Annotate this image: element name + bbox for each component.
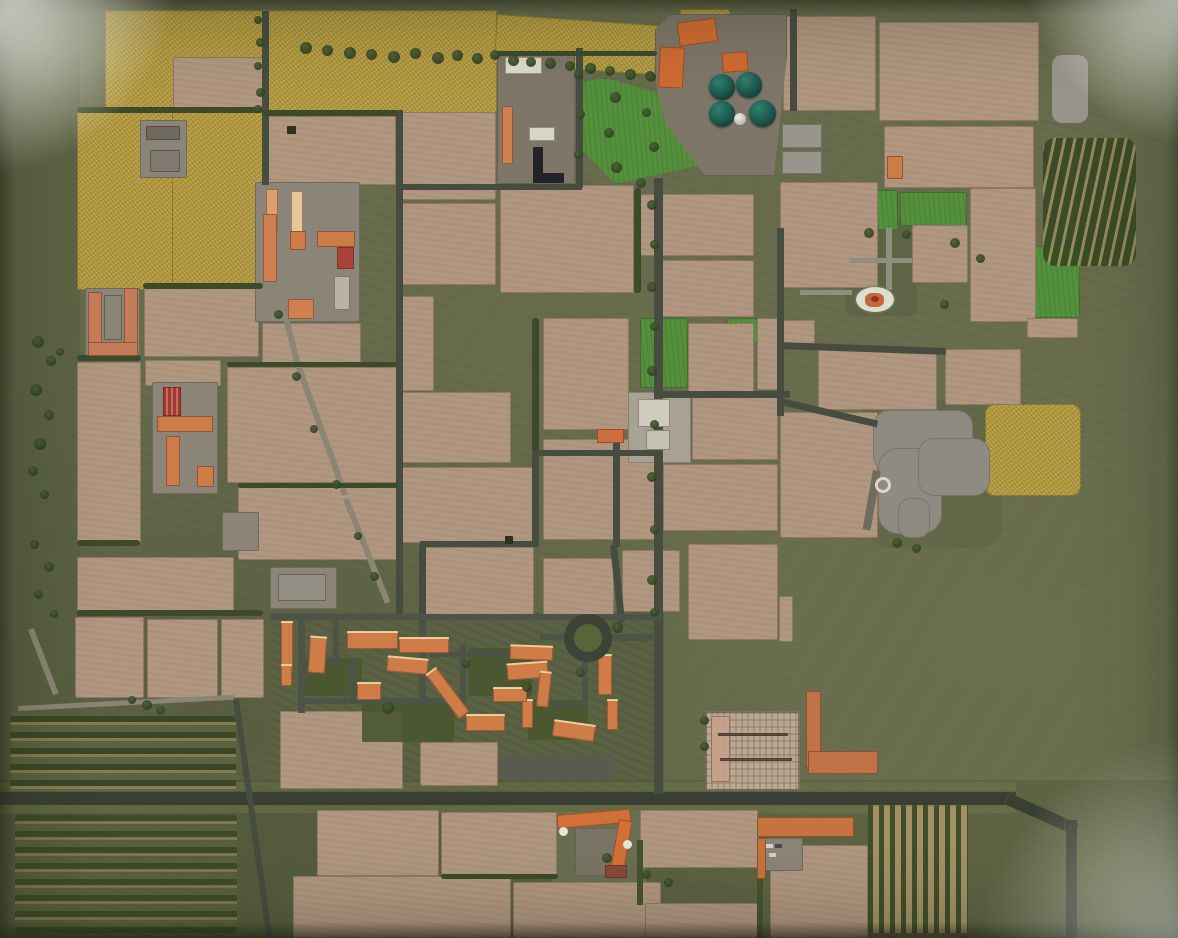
tree <box>576 110 585 119</box>
tree <box>44 562 54 572</box>
rocky-patch <box>1052 55 1088 123</box>
tree <box>56 348 64 356</box>
quarry <box>918 438 990 496</box>
building <box>533 173 564 183</box>
building <box>287 126 296 134</box>
tree <box>310 425 318 433</box>
main-road <box>1066 820 1077 938</box>
building <box>598 654 612 695</box>
building <box>711 716 730 782</box>
tree <box>545 58 556 69</box>
tree <box>650 240 659 249</box>
map-viewport <box>0 0 1178 938</box>
road <box>777 228 784 416</box>
road <box>850 258 912 263</box>
building <box>522 699 533 728</box>
tree <box>300 42 312 54</box>
meadow <box>900 192 967 226</box>
tree <box>642 108 651 117</box>
building <box>166 436 180 486</box>
building <box>357 682 381 700</box>
field <box>645 903 758 938</box>
tree <box>254 62 262 70</box>
biogas-dome <box>736 72 762 98</box>
building <box>529 127 555 141</box>
meadow <box>640 318 688 388</box>
tree <box>646 72 656 82</box>
field <box>221 619 264 698</box>
building <box>197 466 214 487</box>
building <box>308 635 328 673</box>
field <box>500 185 634 293</box>
tree <box>332 480 341 489</box>
building <box>347 631 398 649</box>
building <box>808 751 878 774</box>
tree <box>40 490 49 499</box>
road <box>532 318 539 452</box>
building <box>88 342 138 356</box>
road <box>757 875 763 938</box>
field <box>818 347 937 410</box>
tree <box>254 105 262 113</box>
field <box>441 812 557 875</box>
field <box>543 318 629 430</box>
tree <box>354 532 362 540</box>
road <box>441 874 558 879</box>
building <box>288 299 314 319</box>
tree <box>602 853 612 863</box>
map-canvas[interactable] <box>0 0 1178 938</box>
tree <box>864 228 874 238</box>
orchard <box>10 716 236 792</box>
tree <box>388 51 400 63</box>
building <box>104 295 122 340</box>
tree <box>610 92 621 103</box>
tree <box>650 322 659 331</box>
tree <box>664 878 673 887</box>
tree <box>625 69 636 80</box>
tree <box>522 682 532 692</box>
field <box>884 126 1034 188</box>
road <box>420 541 539 547</box>
road <box>77 540 140 546</box>
building <box>605 865 627 878</box>
building <box>720 758 792 761</box>
building <box>510 644 553 660</box>
tree <box>292 372 301 381</box>
farmyard <box>782 151 822 174</box>
tree <box>902 230 911 239</box>
tree <box>44 410 54 420</box>
building <box>502 106 513 164</box>
road <box>238 483 398 488</box>
tree <box>472 53 483 64</box>
road <box>227 362 397 367</box>
tree <box>647 472 657 482</box>
tree <box>256 38 265 47</box>
tree <box>142 700 152 710</box>
field <box>262 323 361 364</box>
road <box>77 107 263 113</box>
tree <box>650 525 659 534</box>
building <box>399 637 449 653</box>
building <box>646 430 670 450</box>
tree <box>462 660 470 668</box>
road <box>396 184 582 190</box>
tree <box>647 282 657 292</box>
farmyard <box>782 124 822 148</box>
field <box>398 203 496 285</box>
tree <box>565 61 575 71</box>
tree <box>647 200 657 210</box>
biogas-dome <box>709 101 735 127</box>
road <box>333 617 339 663</box>
field <box>692 396 778 460</box>
field <box>688 323 754 393</box>
tree <box>410 48 421 59</box>
road <box>263 110 398 116</box>
tree <box>382 702 394 714</box>
road <box>350 660 356 702</box>
wheat-field <box>985 404 1081 496</box>
orchard <box>15 815 237 933</box>
field <box>779 596 793 642</box>
tree <box>950 238 960 248</box>
vineyard <box>868 803 968 933</box>
building <box>466 714 505 731</box>
field <box>147 619 218 698</box>
road <box>77 610 263 616</box>
tree <box>611 162 622 173</box>
building <box>291 191 303 234</box>
parking-lot <box>222 512 259 551</box>
tree <box>647 575 657 585</box>
tree <box>574 70 583 79</box>
tree <box>585 63 596 74</box>
tree <box>612 622 623 633</box>
road <box>533 450 659 456</box>
building <box>658 46 685 88</box>
map-marker <box>559 827 568 836</box>
field <box>420 547 534 619</box>
road <box>800 290 852 295</box>
road <box>262 11 269 185</box>
tree <box>32 336 44 348</box>
tree <box>366 49 377 60</box>
field <box>400 296 434 391</box>
field <box>543 558 614 618</box>
building <box>150 150 180 172</box>
field <box>238 487 397 560</box>
tree <box>490 50 500 60</box>
field <box>780 182 878 288</box>
map-marker <box>623 840 632 849</box>
field <box>663 464 778 531</box>
road <box>634 188 641 293</box>
building <box>290 231 306 250</box>
roundabout-island <box>574 624 602 652</box>
red-barn <box>163 387 181 416</box>
tree <box>30 384 42 396</box>
field <box>77 557 234 611</box>
warehouse <box>278 574 326 601</box>
tree <box>576 668 585 677</box>
north-south-road <box>654 178 663 794</box>
tree <box>508 55 519 66</box>
road <box>790 9 797 111</box>
field <box>75 617 144 698</box>
field <box>77 362 141 543</box>
tree <box>604 128 614 138</box>
tree <box>650 420 659 429</box>
tree <box>156 706 165 715</box>
field <box>879 22 1039 121</box>
field <box>420 742 498 786</box>
road <box>613 441 620 547</box>
tree <box>700 716 709 725</box>
building <box>317 231 355 247</box>
field <box>1027 318 1078 338</box>
tree <box>649 142 659 152</box>
tree <box>50 610 58 618</box>
field <box>263 116 396 185</box>
field <box>317 810 439 876</box>
building <box>146 126 180 140</box>
tree <box>344 47 356 59</box>
tree <box>892 538 902 548</box>
building <box>718 733 788 736</box>
building <box>887 156 903 179</box>
building <box>597 429 624 443</box>
parked-car <box>775 844 782 848</box>
field <box>658 260 754 317</box>
field <box>362 700 454 742</box>
tree <box>912 544 921 553</box>
tree <box>452 50 463 61</box>
building <box>721 51 748 73</box>
road <box>143 283 263 289</box>
map-marker <box>871 296 879 302</box>
quarry <box>898 498 930 538</box>
building <box>263 214 277 282</box>
tree <box>46 356 56 366</box>
tree <box>700 742 709 751</box>
field <box>293 876 511 938</box>
road <box>497 51 657 56</box>
tree <box>256 88 265 97</box>
building <box>281 664 292 686</box>
tree <box>274 310 283 319</box>
white-tank <box>734 113 746 125</box>
tree <box>605 66 615 76</box>
field <box>912 225 968 283</box>
road <box>886 228 892 290</box>
field <box>780 320 815 345</box>
tree <box>650 608 659 617</box>
long-barn <box>757 817 854 837</box>
tree <box>34 590 43 599</box>
orchard <box>1043 138 1136 266</box>
biogas-dome <box>749 100 776 127</box>
quarry-ring <box>875 477 891 493</box>
parked-car <box>766 844 773 848</box>
field <box>688 544 778 640</box>
building <box>505 536 513 544</box>
road <box>532 452 539 547</box>
building <box>334 276 350 310</box>
tree <box>976 254 985 263</box>
field <box>173 57 263 110</box>
tree <box>636 178 646 188</box>
tree <box>526 57 536 67</box>
field <box>400 392 511 463</box>
tree <box>642 870 651 879</box>
tree <box>128 696 136 704</box>
tree <box>30 540 39 549</box>
field <box>640 810 758 868</box>
tree <box>28 466 38 476</box>
tree <box>254 16 262 24</box>
building <box>757 838 766 879</box>
tree <box>574 150 583 159</box>
field <box>945 349 1021 405</box>
tree <box>34 438 46 450</box>
tree <box>940 300 949 309</box>
road <box>582 656 588 706</box>
tree <box>432 52 444 64</box>
tree <box>647 366 657 376</box>
village-parking <box>500 755 613 780</box>
parked-car <box>769 853 776 857</box>
road <box>611 634 655 641</box>
tree <box>322 45 333 56</box>
main-road <box>0 792 1016 805</box>
road <box>419 545 426 623</box>
road <box>540 634 566 640</box>
field <box>400 467 534 543</box>
building <box>157 416 213 432</box>
tree <box>370 572 379 581</box>
biogas-dome <box>709 74 735 100</box>
field <box>757 318 779 390</box>
building <box>607 699 618 730</box>
road <box>658 391 790 398</box>
building <box>337 247 354 269</box>
field <box>144 288 259 357</box>
